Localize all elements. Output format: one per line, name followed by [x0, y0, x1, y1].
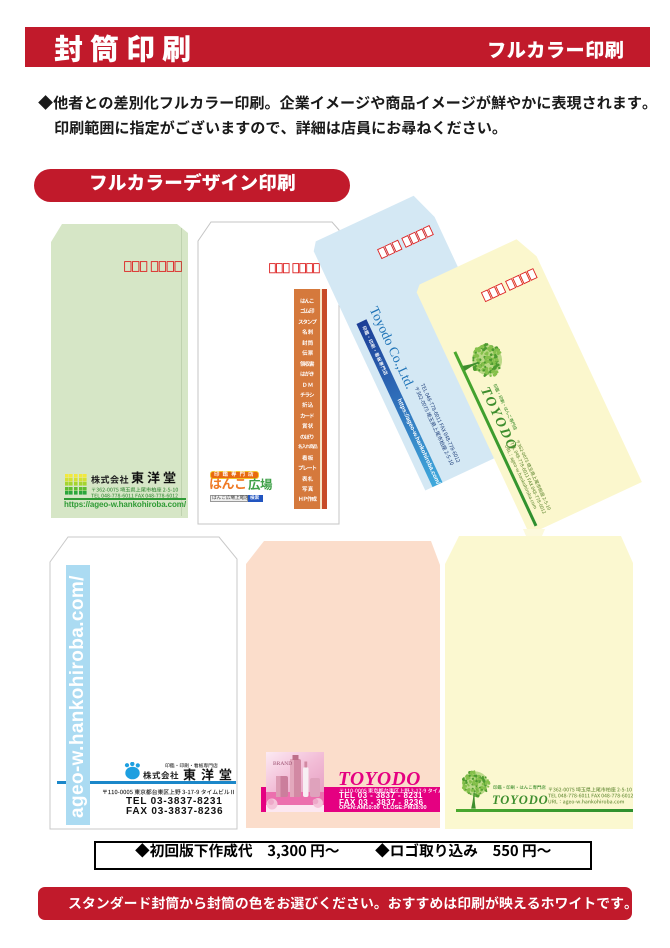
- svg-text:BRAND: BRAND: [273, 761, 292, 767]
